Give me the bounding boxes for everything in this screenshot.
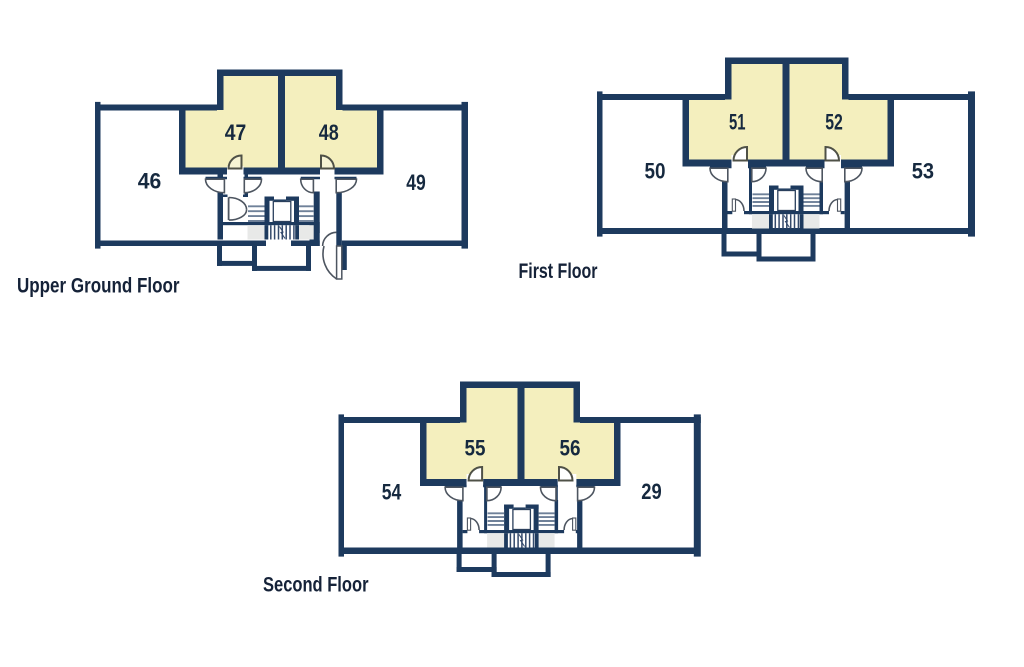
svg-text:48: 48 xyxy=(319,120,339,145)
svg-text:46: 46 xyxy=(138,169,162,194)
svg-text:29: 29 xyxy=(641,479,661,504)
svg-text:49: 49 xyxy=(406,170,426,195)
svg-text:55: 55 xyxy=(465,436,486,461)
svg-text:Second Floor: Second Floor xyxy=(263,572,369,596)
svg-text:52: 52 xyxy=(825,110,843,135)
svg-text:56: 56 xyxy=(560,436,581,461)
svg-text:47: 47 xyxy=(225,120,247,145)
svg-text:53: 53 xyxy=(912,159,934,184)
svg-text:First Floor: First Floor xyxy=(519,259,598,283)
svg-text:Upper Ground Floor: Upper Ground Floor xyxy=(17,274,180,298)
svg-text:50: 50 xyxy=(645,159,666,184)
svg-text:54: 54 xyxy=(382,480,402,505)
svg-text:51: 51 xyxy=(729,110,746,135)
